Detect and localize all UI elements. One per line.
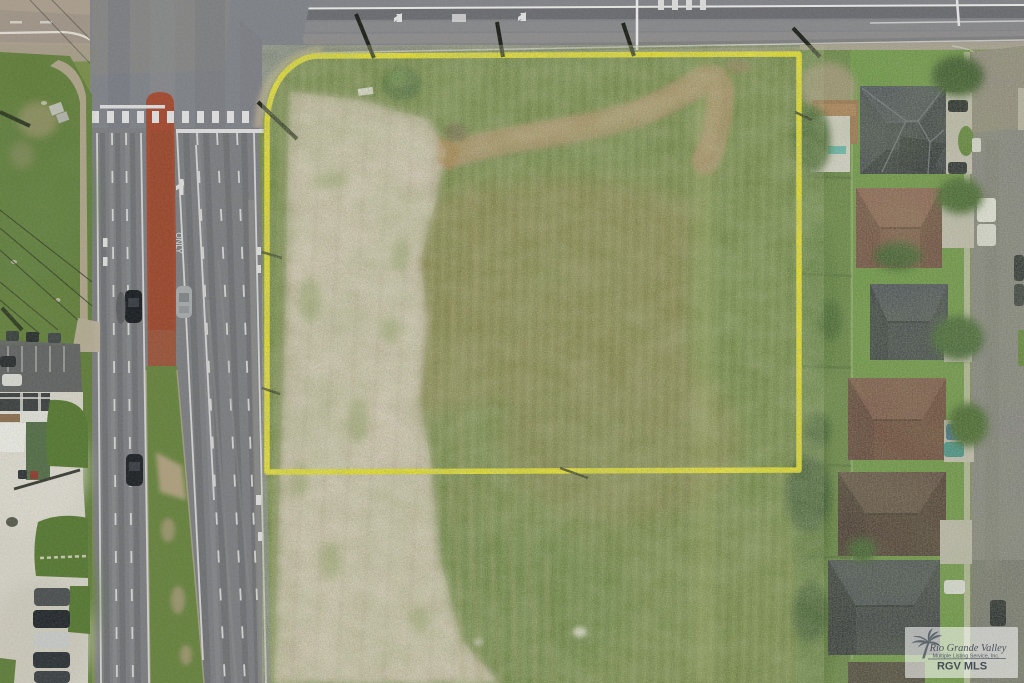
svg-text:RGV MLS: RGV MLS: [937, 661, 987, 673]
svg-text:Rio Grande Valley: Rio Grande Valley: [929, 643, 1007, 654]
